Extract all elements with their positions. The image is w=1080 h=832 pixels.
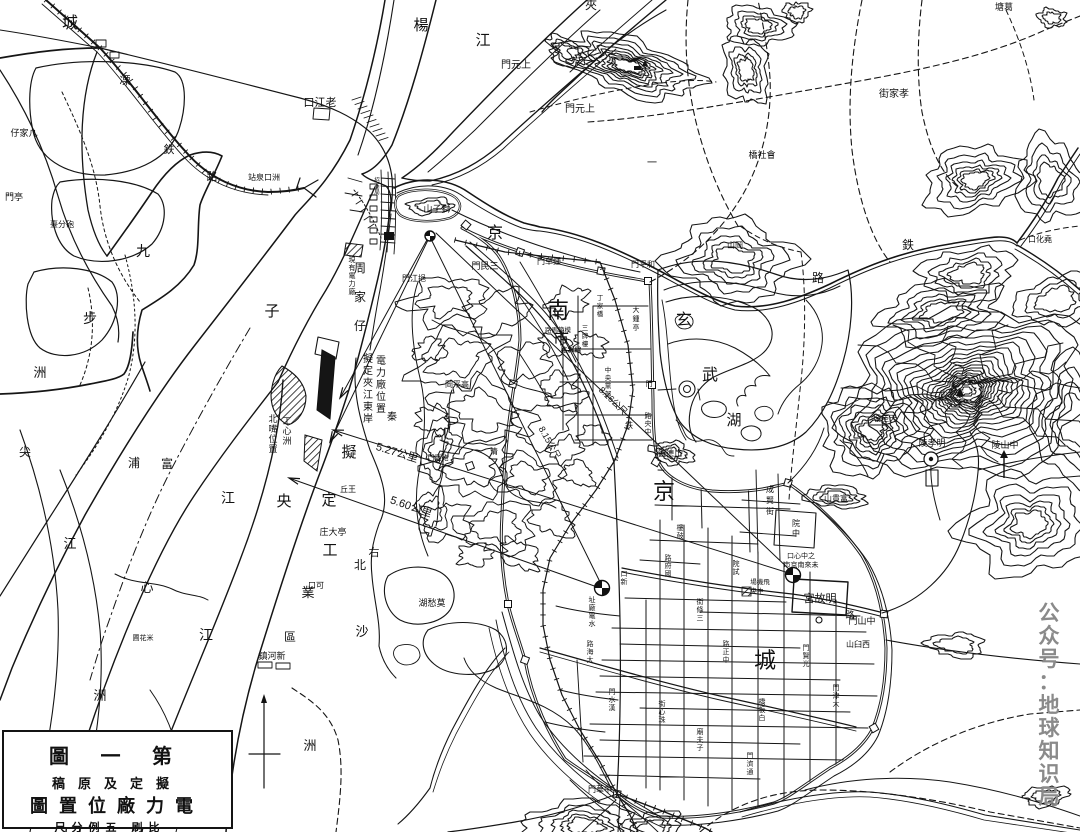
svg-text:鉄: 鉄 xyxy=(164,142,175,156)
svg-text:京: 京 xyxy=(487,224,503,242)
svg-text:山子獅: 山子獅 xyxy=(423,203,450,214)
svg-text:橋板白: 橋板白 xyxy=(759,697,766,722)
svg-text:門平和: 門平和 xyxy=(631,260,655,269)
svg-text:江: 江 xyxy=(221,490,235,506)
svg-text:宮故明: 宮故明 xyxy=(804,591,837,605)
svg-text:央: 央 xyxy=(276,493,291,510)
svg-text:路馬範模: 路馬範模 xyxy=(545,325,572,334)
svg-text:站泉口洲: 站泉口洲 xyxy=(248,172,280,182)
svg-text:口化堯: 口化堯 xyxy=(1028,234,1052,244)
svg-text:南: 南 xyxy=(547,298,569,323)
svg-text:院試: 院試 xyxy=(733,559,740,576)
svg-text:圖置位廠力電: 圖置位廠力電 xyxy=(30,795,204,816)
svg-text:稿原及定擬: 稿原及定擬 xyxy=(52,776,182,791)
svg-text:路央中: 路央中 xyxy=(645,411,652,436)
svg-text:山岡: 山岡 xyxy=(727,240,743,250)
svg-text:沙: 沙 xyxy=(355,624,368,639)
svg-text:武: 武 xyxy=(702,366,718,384)
svg-text:步: 步 xyxy=(83,310,97,326)
svg-text:夾: 夾 xyxy=(585,0,597,12)
svg-text:浦: 浦 xyxy=(128,456,140,470)
svg-text:凓: 凓 xyxy=(120,74,131,87)
svg-text:市京南來未: 市京南來未 xyxy=(784,560,819,569)
svg-text:鎮河新: 鎮河新 xyxy=(258,650,285,661)
svg-text:江: 江 xyxy=(63,536,76,551)
svg-text:九: 九 xyxy=(136,243,150,259)
svg-text:門水漢: 門水漢 xyxy=(609,688,616,712)
svg-text:塘葛: 塘葛 xyxy=(995,1,1013,12)
svg-text:央中: 央中 xyxy=(751,586,764,595)
svg-text:門江挹: 門江挹 xyxy=(402,273,426,283)
svg-text:門賢光: 門賢光 xyxy=(803,644,810,668)
svg-text:城堡天: 城堡天 xyxy=(873,413,897,423)
svg-text:路海太: 路海太 xyxy=(587,639,594,664)
svg-text:場機飛: 場機飛 xyxy=(750,577,770,586)
svg-text:尖: 尖 xyxy=(19,445,31,459)
svg-text:口可: 口可 xyxy=(308,581,324,590)
svg-text:楊: 楊 xyxy=(413,17,428,34)
svg-text:門濟通: 門濟通 xyxy=(747,752,754,776)
svg-text:清: 清 xyxy=(490,446,498,456)
svg-text:招商局: 招商局 xyxy=(374,176,380,196)
svg-text:路正中: 路正中 xyxy=(723,639,730,664)
svg-text:丁家橋: 丁家橋 xyxy=(597,294,604,318)
svg-text:三牌樓: 三牌樓 xyxy=(582,324,589,348)
svg-text:京: 京 xyxy=(653,479,675,504)
svg-text:庄大亭: 庄大亭 xyxy=(319,526,346,537)
svg-text:成賢街: 成賢街 xyxy=(766,484,774,516)
svg-text:洲: 洲 xyxy=(303,738,316,753)
svg-text:定: 定 xyxy=(321,492,336,509)
svg-text:門津大: 門津大 xyxy=(833,684,840,708)
svg-text:街心珠: 街心珠 xyxy=(659,699,666,724)
svg-text:現有電力廠: 現有電力廠 xyxy=(349,256,356,296)
svg-text:門元上: 門元上 xyxy=(501,59,531,71)
svg-text:電力廠位置: 電力廠位置 xyxy=(376,355,386,415)
svg-text:臺分砲: 臺分砲 xyxy=(50,219,74,229)
svg-text:擬: 擬 xyxy=(341,444,356,461)
svg-text:址廠電水: 址廠電水 xyxy=(589,595,596,628)
svg-text:工心洲: 工心洲 xyxy=(282,416,291,446)
svg-text:中央黨部: 中央黨部 xyxy=(605,365,612,398)
svg-text:山金紫: 山金紫 xyxy=(940,389,964,399)
svg-text:樓鼓: 樓鼓 xyxy=(677,523,684,540)
svg-text:公众号：地球知识局: 公众号：地球知识局 xyxy=(1039,602,1061,809)
svg-text:路府國: 路府國 xyxy=(665,553,672,578)
svg-text:門元上: 門元上 xyxy=(565,103,595,115)
svg-text:湖: 湖 xyxy=(726,412,741,429)
svg-text:區: 區 xyxy=(284,630,296,644)
svg-text:廟夫子: 廟夫子 xyxy=(697,727,704,752)
svg-text:北嘴位置: 北嘴位置 xyxy=(268,414,277,454)
svg-text:路: 路 xyxy=(812,270,824,285)
svg-text:口心中之: 口心中之 xyxy=(787,551,815,560)
svg-text:圖 一 第: 圖 一 第 xyxy=(49,744,185,768)
svg-text:岡平高: 岡平高 xyxy=(445,379,469,389)
svg-text:門臺砲: 門臺砲 xyxy=(428,453,449,462)
svg-text:山臼西: 山臼西 xyxy=(846,639,870,649)
svg-text:路新線: 路新線 xyxy=(561,345,582,354)
svg-text:觀德止: 觀德止 xyxy=(658,448,682,458)
svg-text:周家仔: 周家仔 xyxy=(354,261,366,333)
svg-text:門亭: 門亭 xyxy=(5,191,23,202)
svg-text:街家孝: 街家孝 xyxy=(879,87,909,100)
svg-text:子: 子 xyxy=(264,303,279,320)
svg-text:一: 一 xyxy=(647,158,657,169)
svg-text:北: 北 xyxy=(354,558,366,572)
svg-text:城: 城 xyxy=(62,14,78,32)
svg-text:仔家凢: 仔家凢 xyxy=(10,127,37,138)
svg-text:圃花米: 圃花米 xyxy=(133,633,154,642)
svg-text:秦: 秦 xyxy=(387,410,397,423)
svg-text:江: 江 xyxy=(199,627,213,643)
svg-text:陵孝明: 陵孝明 xyxy=(918,438,945,448)
svg-text:橋社會: 橋社會 xyxy=(748,149,775,160)
svg-text:門: 門 xyxy=(646,380,653,388)
svg-text:口江老: 口江老 xyxy=(304,96,337,109)
svg-text:鉄: 鉄 xyxy=(625,420,633,430)
svg-text:路: 路 xyxy=(845,609,854,620)
svg-text:門民三: 門民三 xyxy=(471,261,498,271)
svg-text:富: 富 xyxy=(161,456,173,471)
svg-text:洲: 洲 xyxy=(33,365,46,380)
svg-text:丘王: 丘王 xyxy=(340,485,356,494)
svg-text:城: 城 xyxy=(754,648,776,673)
svg-text:尺分例五 刷比: 尺分例五 刷比 xyxy=(54,820,165,832)
svg-text:江: 江 xyxy=(475,32,490,49)
svg-text:洲: 洲 xyxy=(93,688,106,703)
svg-text:街條三: 街條三 xyxy=(697,597,704,622)
svg-text:大鍾亭: 大鍾亭 xyxy=(633,305,640,332)
svg-text:陵山中: 陵山中 xyxy=(991,439,1018,450)
svg-text:門華中: 門華中 xyxy=(588,784,612,794)
svg-text:山貴富: 山貴富 xyxy=(824,493,848,503)
svg-text:玄: 玄 xyxy=(676,311,692,329)
svg-text:工: 工 xyxy=(322,542,337,559)
svg-text:鉄: 鉄 xyxy=(902,237,914,252)
svg-text:右: 右 xyxy=(369,545,380,559)
svg-text:心: 心 xyxy=(140,580,153,595)
svg-text:路: 路 xyxy=(207,170,218,183)
svg-text:湖愁莫: 湖愁莫 xyxy=(418,597,445,608)
svg-text:門阜鍾: 門阜鍾 xyxy=(537,256,561,266)
